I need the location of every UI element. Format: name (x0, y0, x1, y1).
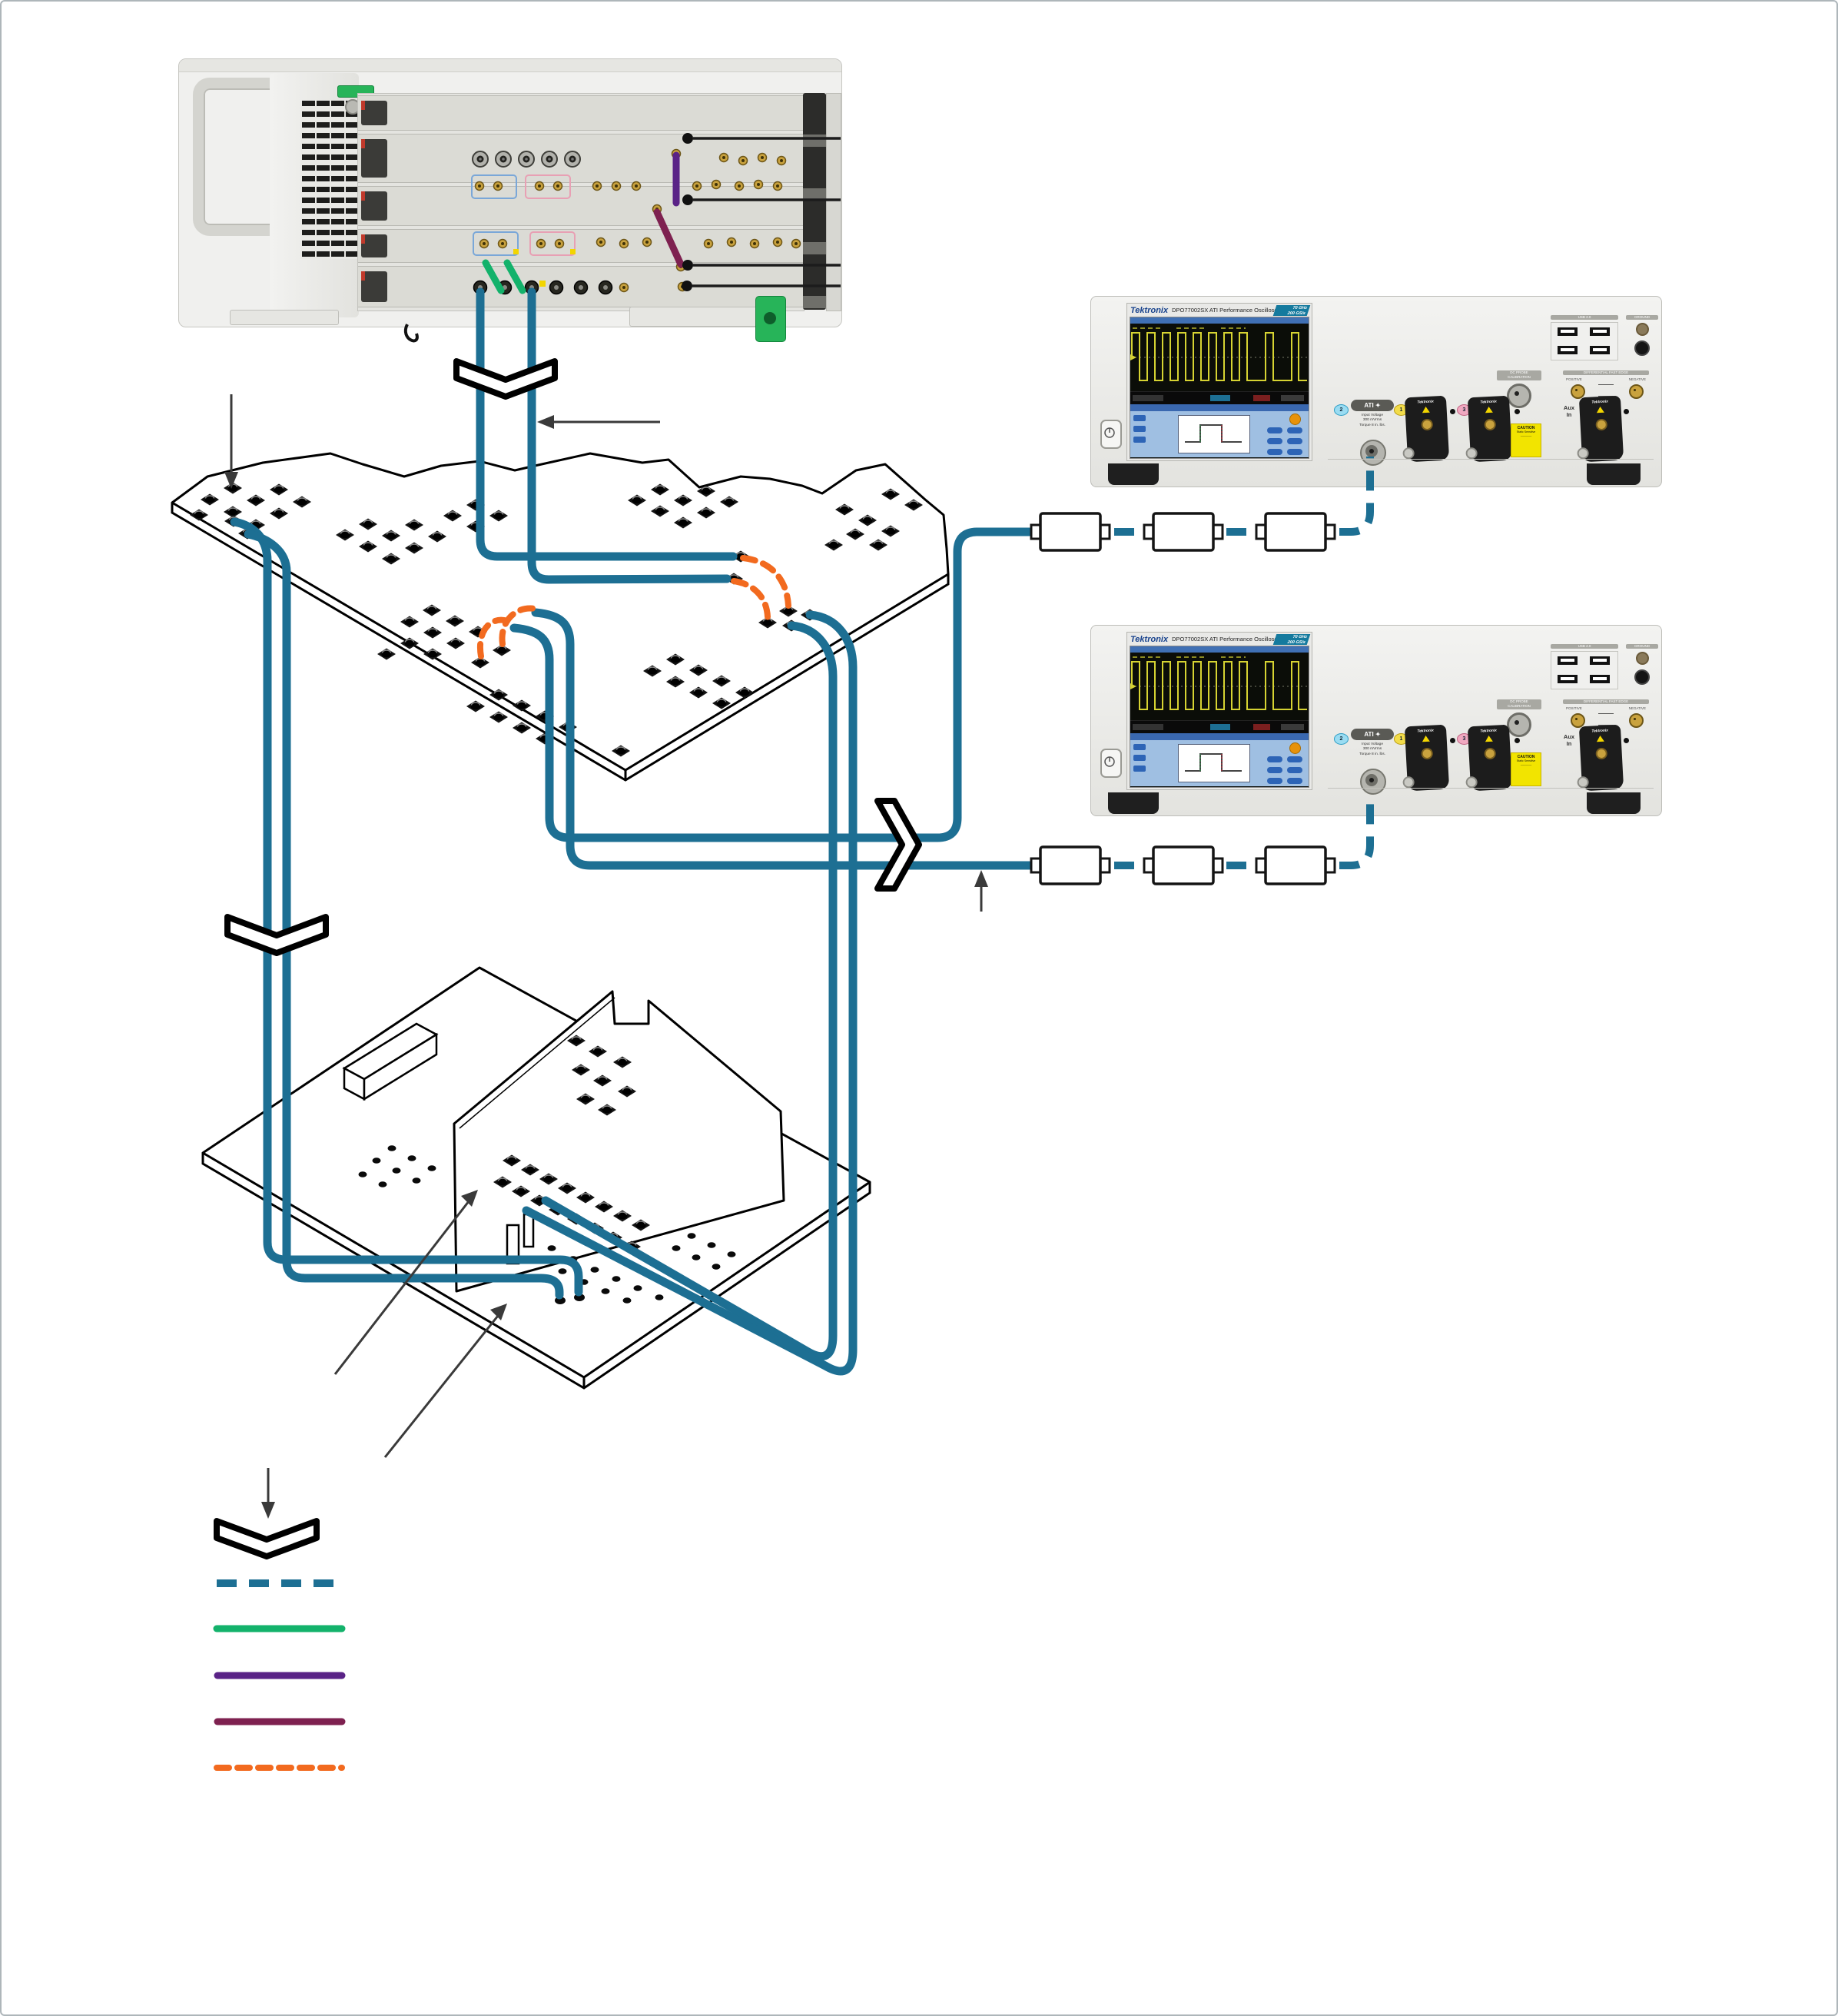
scope-brand: Tektronix (1130, 635, 1168, 644)
ground-label: GROUND (1626, 315, 1658, 320)
usb-label: USB 2.0 (1551, 315, 1618, 320)
oscilloscope-2: Tektronix DPO77002SX ATI Performance Osc… (1090, 625, 1662, 816)
scope-waveform (1130, 324, 1309, 391)
scope-bandwidth-badge: 70 GHz200 GS/s (1273, 305, 1311, 316)
scope-status-bar (1130, 391, 1309, 404)
interposer-sma-connectors (190, 483, 923, 757)
connection-diagram: Tektronix DPO77002SX ATI Performance Osc… (0, 0, 1838, 2016)
scope-header: Tektronix DPO77002SX ATI Performance Osc… (1130, 633, 1309, 645)
legend-cable-break-symbol (217, 1468, 317, 1556)
chassis-vent-grid (300, 101, 359, 259)
usb-label: USB 2.0 (1551, 644, 1618, 649)
scope-model: DPO77002SX ATI Performance Oscilloscope (1172, 636, 1287, 643)
channel-1-adapter: Tektronix (1405, 396, 1449, 463)
chassis-module-2 (358, 186, 804, 226)
board-to-host-cable-left-1 (234, 522, 579, 1292)
annotation-arrows (224, 394, 988, 1457)
board-to-host-cable-left-2 (248, 534, 559, 1295)
dimm-component (344, 1024, 436, 1099)
orange-jumper-right-1 (743, 558, 788, 606)
chassis-bottom-rail-left (230, 310, 339, 325)
ati-input-specs: Input Voltage300 mVrmsTorque 8 in. lbs. (1345, 742, 1400, 757)
scope-display-module: Tektronix DPO77002SX ATI Performance Osc… (1126, 303, 1312, 461)
aux-in-adapter: Tektronix (1579, 725, 1624, 792)
host-board-vias (359, 1145, 736, 1304)
scope-foot (1587, 463, 1641, 485)
bert-chassis (178, 58, 842, 327)
aux-in-label: AuxIn (1558, 733, 1580, 747)
ati-input-connector (1360, 769, 1386, 795)
scope-screen-menubar (1130, 317, 1309, 324)
ati-input-label: ATI ✦ (1351, 400, 1394, 411)
chassis-to-board-cable-1 (480, 292, 733, 556)
scope-control-panel (1130, 733, 1309, 786)
board-to-scope2-cable (536, 613, 1031, 865)
ground-connector: GROUND (1626, 644, 1658, 702)
board-to-scope1-cable (514, 532, 1031, 838)
scope-bandwidth-badge: 70 GHz200 GS/s (1273, 634, 1311, 645)
scope-panel-titlebar (1130, 404, 1309, 411)
scope-panel-titlebar (1130, 733, 1309, 740)
scope-orange-button (1289, 413, 1301, 425)
power-button (1100, 420, 1122, 449)
power-button (1100, 749, 1122, 778)
scope-pulse-diagram (1178, 744, 1250, 782)
usb-ports: USB 2.0 (1551, 315, 1618, 363)
host-board (203, 968, 870, 1388)
chassis-top-edge (179, 59, 841, 72)
scope-orange-button (1289, 742, 1301, 754)
chassis-green-foot (755, 296, 786, 342)
ati-input-label: ATI ✦ (1351, 729, 1394, 740)
ground-connector: GROUND (1626, 315, 1658, 374)
orange-jumper-right-2 (734, 581, 768, 617)
usb-ports: USB 2.0 (1551, 644, 1618, 692)
chassis-to-board-cable-2 (532, 292, 727, 580)
square-wave-trace (1132, 333, 1307, 380)
scope-model: DPO77002SX ATI Performance Oscilloscope (1172, 307, 1287, 314)
chassis-module-slot-blank (358, 95, 804, 131)
caution-label: CAUTIONStatic Sensitive―――― (1511, 752, 1541, 786)
caution-label: CAUTIONStatic Sensitive―――― (1511, 423, 1541, 457)
oscilloscope-1: Tektronix DPO77002SX ATI Performance Osc… (1090, 296, 1662, 487)
scope-status-bar (1130, 720, 1309, 733)
orange-jumper-left-2 (502, 609, 535, 644)
square-wave-trace (1132, 662, 1307, 709)
channel-3-adapter: Tektronix (1468, 396, 1512, 463)
chassis-right-panel (826, 93, 841, 311)
aux-in-label: AuxIn (1558, 404, 1580, 418)
board-to-riser-cable-right-2 (526, 615, 853, 1371)
chassis-module-3 (358, 229, 804, 263)
board-to-riser-cable-right-1 (546, 626, 833, 1357)
ati-input-specs: Input Voltage300 mVrmsTorque 8 in. lbs. (1345, 413, 1400, 428)
scope-waveform (1130, 653, 1309, 720)
channel-3-adapter: Tektronix (1468, 725, 1512, 792)
legend (217, 1468, 342, 1768)
scope-foot (1587, 792, 1641, 814)
orange-jumper-left-1 (480, 620, 512, 656)
chassis-module-4 (358, 266, 804, 307)
chassis-latch-column (803, 93, 826, 310)
cable-break-chevron-chassis (456, 361, 555, 397)
scope-header: Tektronix DPO77002SX ATI Performance Osc… (1130, 304, 1309, 316)
riser-card (454, 991, 784, 1291)
chassis-handle (193, 78, 280, 236)
diff-edge-label: DIFFERENTIAL FAST EDGE (1563, 699, 1649, 704)
scope-display-module: Tektronix DPO77002SX ATI Performance Osc… (1126, 632, 1312, 790)
scope-screen (1130, 646, 1309, 788)
scope-foot (1108, 792, 1159, 814)
riser-sma-connectors (493, 1035, 650, 1253)
ground-label: GROUND (1626, 644, 1658, 649)
chassis-module-1 (358, 134, 804, 183)
scope-brand: Tektronix (1130, 306, 1168, 315)
channel-1-adapter: Tektronix (1405, 725, 1449, 792)
interposer-board (172, 453, 948, 780)
aux-in-adapter: Tektronix (1579, 396, 1624, 463)
scope-control-panel (1130, 404, 1309, 457)
scope-pulse-diagram (1178, 415, 1250, 453)
cable-break-chevron-scope-cables (878, 801, 919, 888)
chassis-module-bay (357, 93, 805, 311)
scope-screen (1130, 317, 1309, 459)
diff-edge-label: DIFFERENTIAL FAST EDGE (1563, 370, 1649, 375)
cable-break-chevron-left-pair (227, 917, 326, 953)
ati-input-connector (1360, 440, 1386, 466)
scope-foot (1108, 463, 1159, 485)
scope-screen-menubar (1130, 646, 1309, 653)
